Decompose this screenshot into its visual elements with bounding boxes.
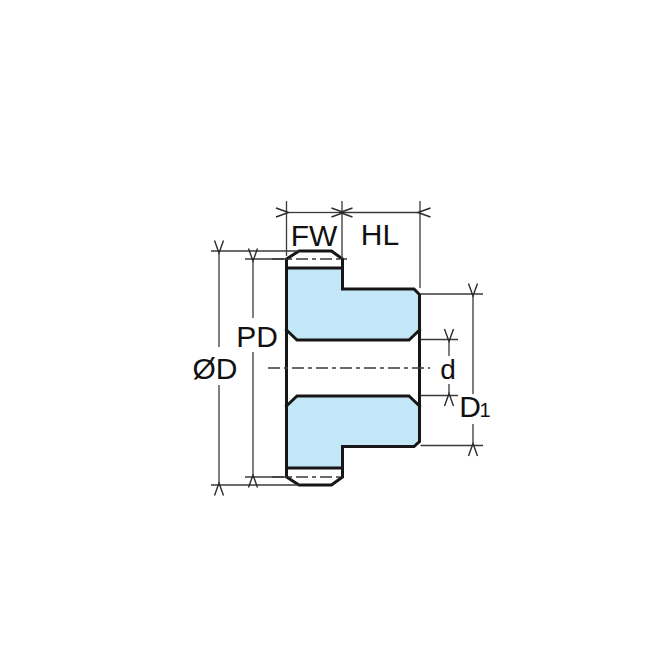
label-outside-diameter: ØD: [193, 352, 238, 385]
label-hub-diameter: D: [459, 390, 481, 423]
label-pitch-diameter: PD: [236, 320, 278, 353]
label-face-width: FW: [291, 219, 338, 252]
label-hub-length: HL: [361, 218, 399, 251]
gear-dimension-diagram: FW HL ØD PD d D 1: [0, 0, 670, 670]
diagram-canvas: FW HL ØD PD d D 1: [0, 0, 670, 670]
label-bore-diameter: d: [440, 354, 456, 385]
label-hub-diameter-subscript: 1: [479, 399, 490, 421]
